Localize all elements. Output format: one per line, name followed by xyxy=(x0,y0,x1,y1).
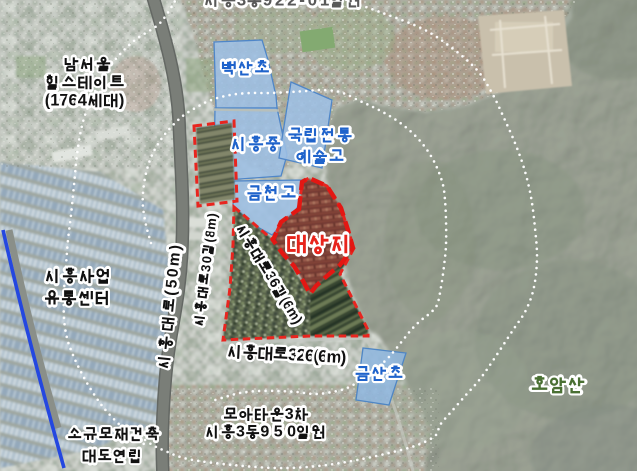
svg-text:950: 950 xyxy=(260,424,296,441)
svg-text:30: 30 xyxy=(198,255,215,273)
svg-text:(1764: (1764 xyxy=(45,92,88,110)
svg-text:3: 3 xyxy=(237,0,246,10)
svg-text:326(6m): 326(6m) xyxy=(288,345,347,367)
svg-text:): ) xyxy=(119,92,125,110)
svg-text:3: 3 xyxy=(236,424,245,441)
svg-text:3: 3 xyxy=(285,406,294,423)
